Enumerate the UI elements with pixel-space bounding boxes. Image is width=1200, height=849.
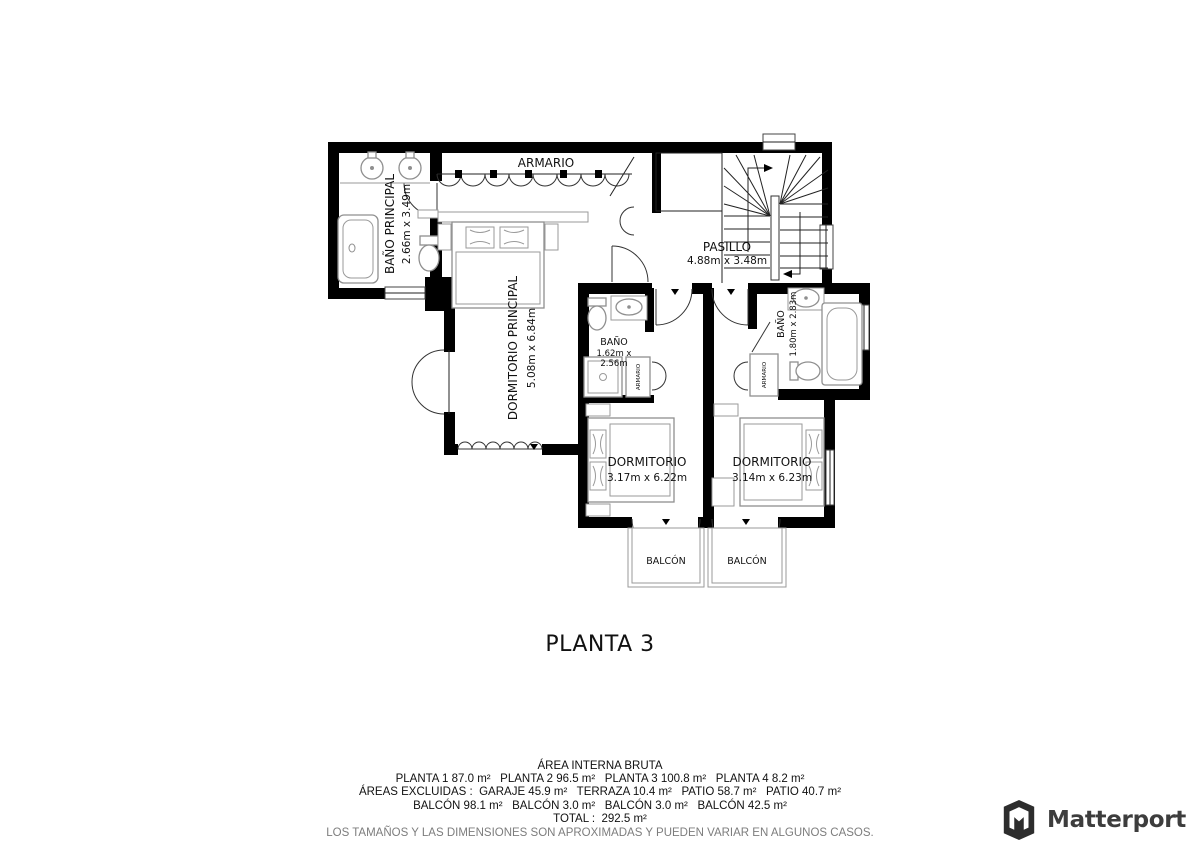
bed-icon (452, 222, 544, 308)
matterport-cube-icon (1000, 799, 1038, 841)
room-dims-bano-1-l2: 2.56m (600, 359, 627, 369)
room-label-dormitorio-2: DORMITORIO (732, 455, 811, 469)
summary-plantas: PLANTA 1 87.0 m² PLANTA 2 96.5 m² PLANTA… (0, 773, 1200, 786)
room-label-pasillo: PASILLO (703, 240, 751, 254)
toilet-tank-icon (420, 236, 438, 245)
room-label-bano-2: BAÑO (776, 310, 787, 338)
summary-heading: ÁREA INTERNA BRUTA (0, 760, 1200, 773)
shelf-icon (438, 212, 588, 222)
toilet-icon (419, 245, 439, 271)
room-dims-bano-1-l1: 1.62m x (597, 349, 632, 359)
nightstand-icon (714, 404, 738, 416)
room-label-bano-1: BAÑO (600, 337, 628, 348)
room-label-dormitorio-1: DORMITORIO (607, 455, 686, 469)
bathtub-icon (822, 303, 862, 385)
toilet-icon (588, 306, 606, 330)
room-dims-bano-2: 1.80m x 2.83m (789, 292, 799, 357)
stair-shaft (656, 153, 722, 211)
room-label-armario: ARMARIO (518, 156, 574, 170)
nightstand-icon (545, 224, 558, 250)
floor-title: PLANTA 3 (545, 632, 654, 657)
bench-icon (712, 478, 734, 506)
window-scalloped (458, 442, 542, 449)
room-dims-dormitorio-2: 3.14m x 6.23m (732, 472, 812, 484)
room-dims-dormitorio-1: 3.17m x 6.22m (607, 472, 687, 484)
closet-label-armario-2: ARMARIO (762, 361, 768, 388)
room-label-dormitorio-principal: DORMITORIO PRINCIPAL (506, 276, 520, 421)
radiator-icon (418, 210, 438, 218)
nightstand-icon (586, 404, 610, 416)
room-dims-dormitorio-principal: 5.08m x 6.84m (526, 308, 538, 388)
toilet-icon (796, 362, 820, 380)
room-label-balcon-2: BALCÓN (727, 555, 767, 567)
nightstand-icon (438, 224, 451, 250)
floorplan-page: BAÑO PRINCIPAL 2.66m x 3.49m ARMARIO DOR… (0, 0, 1200, 849)
closet-label-armario-1: ARMARIO (636, 363, 642, 390)
room-dims-bano-principal: 2.66m x 3.49m (401, 184, 413, 264)
bench-icon (586, 504, 610, 516)
toilet-tank-icon (588, 298, 606, 306)
room-label-bano-principal: BAÑO PRINCIPAL (382, 174, 397, 274)
floorplan-drawing: BAÑO PRINCIPAL 2.66m x 3.49m ARMARIO DOR… (0, 0, 1200, 849)
matterport-branding: Matterport (1000, 799, 1186, 841)
matterport-wordmark: Matterport (1047, 807, 1186, 833)
summary-excluidas: ÁREAS EXCLUIDAS : GARAJE 45.9 m² TERRAZA… (0, 786, 1200, 799)
room-dims-pasillo: 4.88m x 3.48m (687, 255, 767, 267)
room-label-balcon-1: BALCÓN (646, 555, 686, 567)
